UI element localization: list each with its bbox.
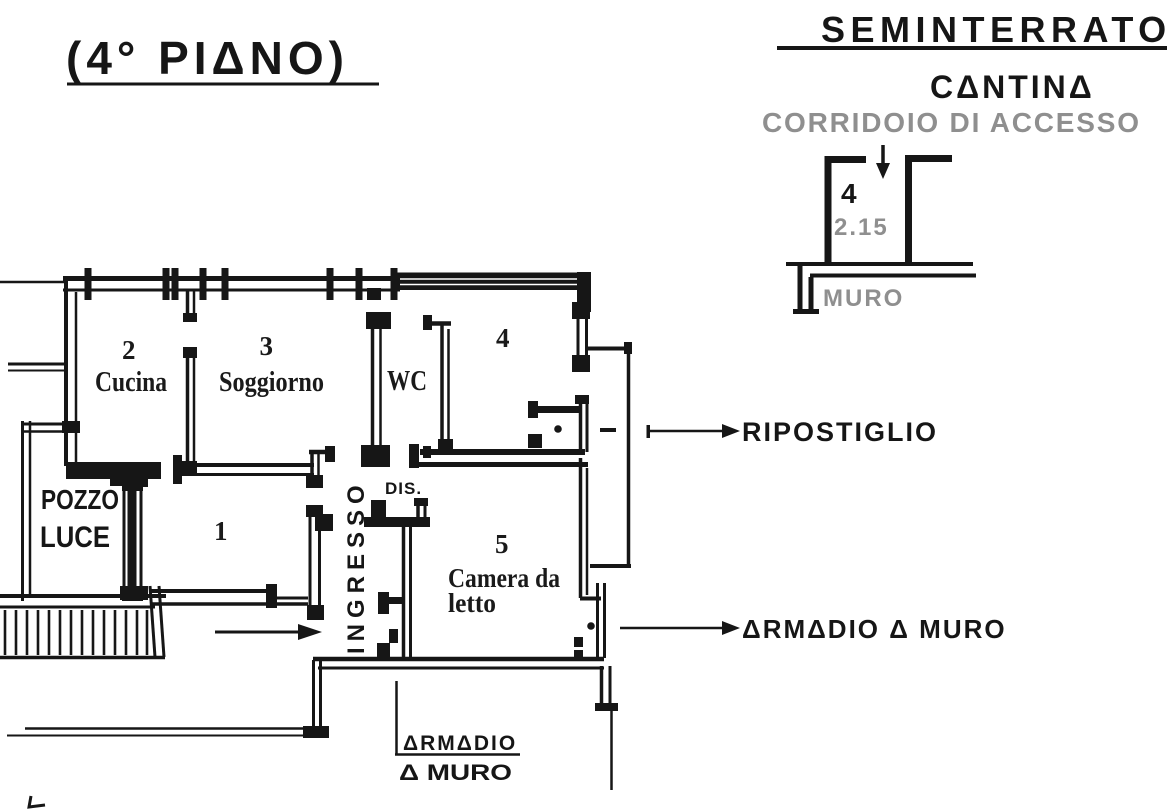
svg-text:ΔRMΔDIO: ΔRMΔDIO — [403, 732, 517, 755]
svg-text:3: 3 — [260, 331, 274, 361]
svg-text:RIPOSTIGLIO: RIPOSTIGLIO — [742, 417, 938, 447]
svg-text:CORRIDOIO DI ACCESSO: CORRIDOIO DI ACCESSO — [762, 107, 1141, 138]
svg-text:ΔRMΔDIO Δ MURO: ΔRMΔDIO Δ MURO — [742, 614, 1007, 644]
svg-text:Cucina: Cucina — [95, 367, 167, 398]
svg-text:Δ MURO: Δ MURO — [399, 760, 512, 785]
svg-text:DIS.: DIS. — [385, 479, 422, 498]
svg-text:INGRESSO: INGRESSO — [343, 479, 370, 654]
svg-text:POZZO: POZZO — [41, 484, 119, 515]
svg-text:5: 5 — [495, 529, 509, 559]
svg-text:MURO: MURO — [823, 285, 904, 312]
svg-text:(4° PIΔNO): (4° PIΔNO) — [66, 32, 349, 84]
svg-text:1: 1 — [214, 516, 228, 546]
svg-text:WC: WC — [387, 366, 427, 397]
svg-text:letto: letto — [448, 588, 496, 618]
svg-text:CΔNTINΔ: CΔNTINΔ — [930, 69, 1095, 105]
svg-text:Soggiorno: Soggiorno — [219, 367, 324, 398]
svg-text:2.15: 2.15 — [834, 214, 889, 241]
svg-text:SEMINTERRATO: SEMINTERRATO — [821, 9, 1167, 50]
svg-text:4: 4 — [841, 178, 857, 209]
svg-text:4: 4 — [496, 323, 510, 353]
svg-text:2: 2 — [122, 335, 136, 365]
svg-text:LUCE: LUCE — [40, 521, 110, 554]
